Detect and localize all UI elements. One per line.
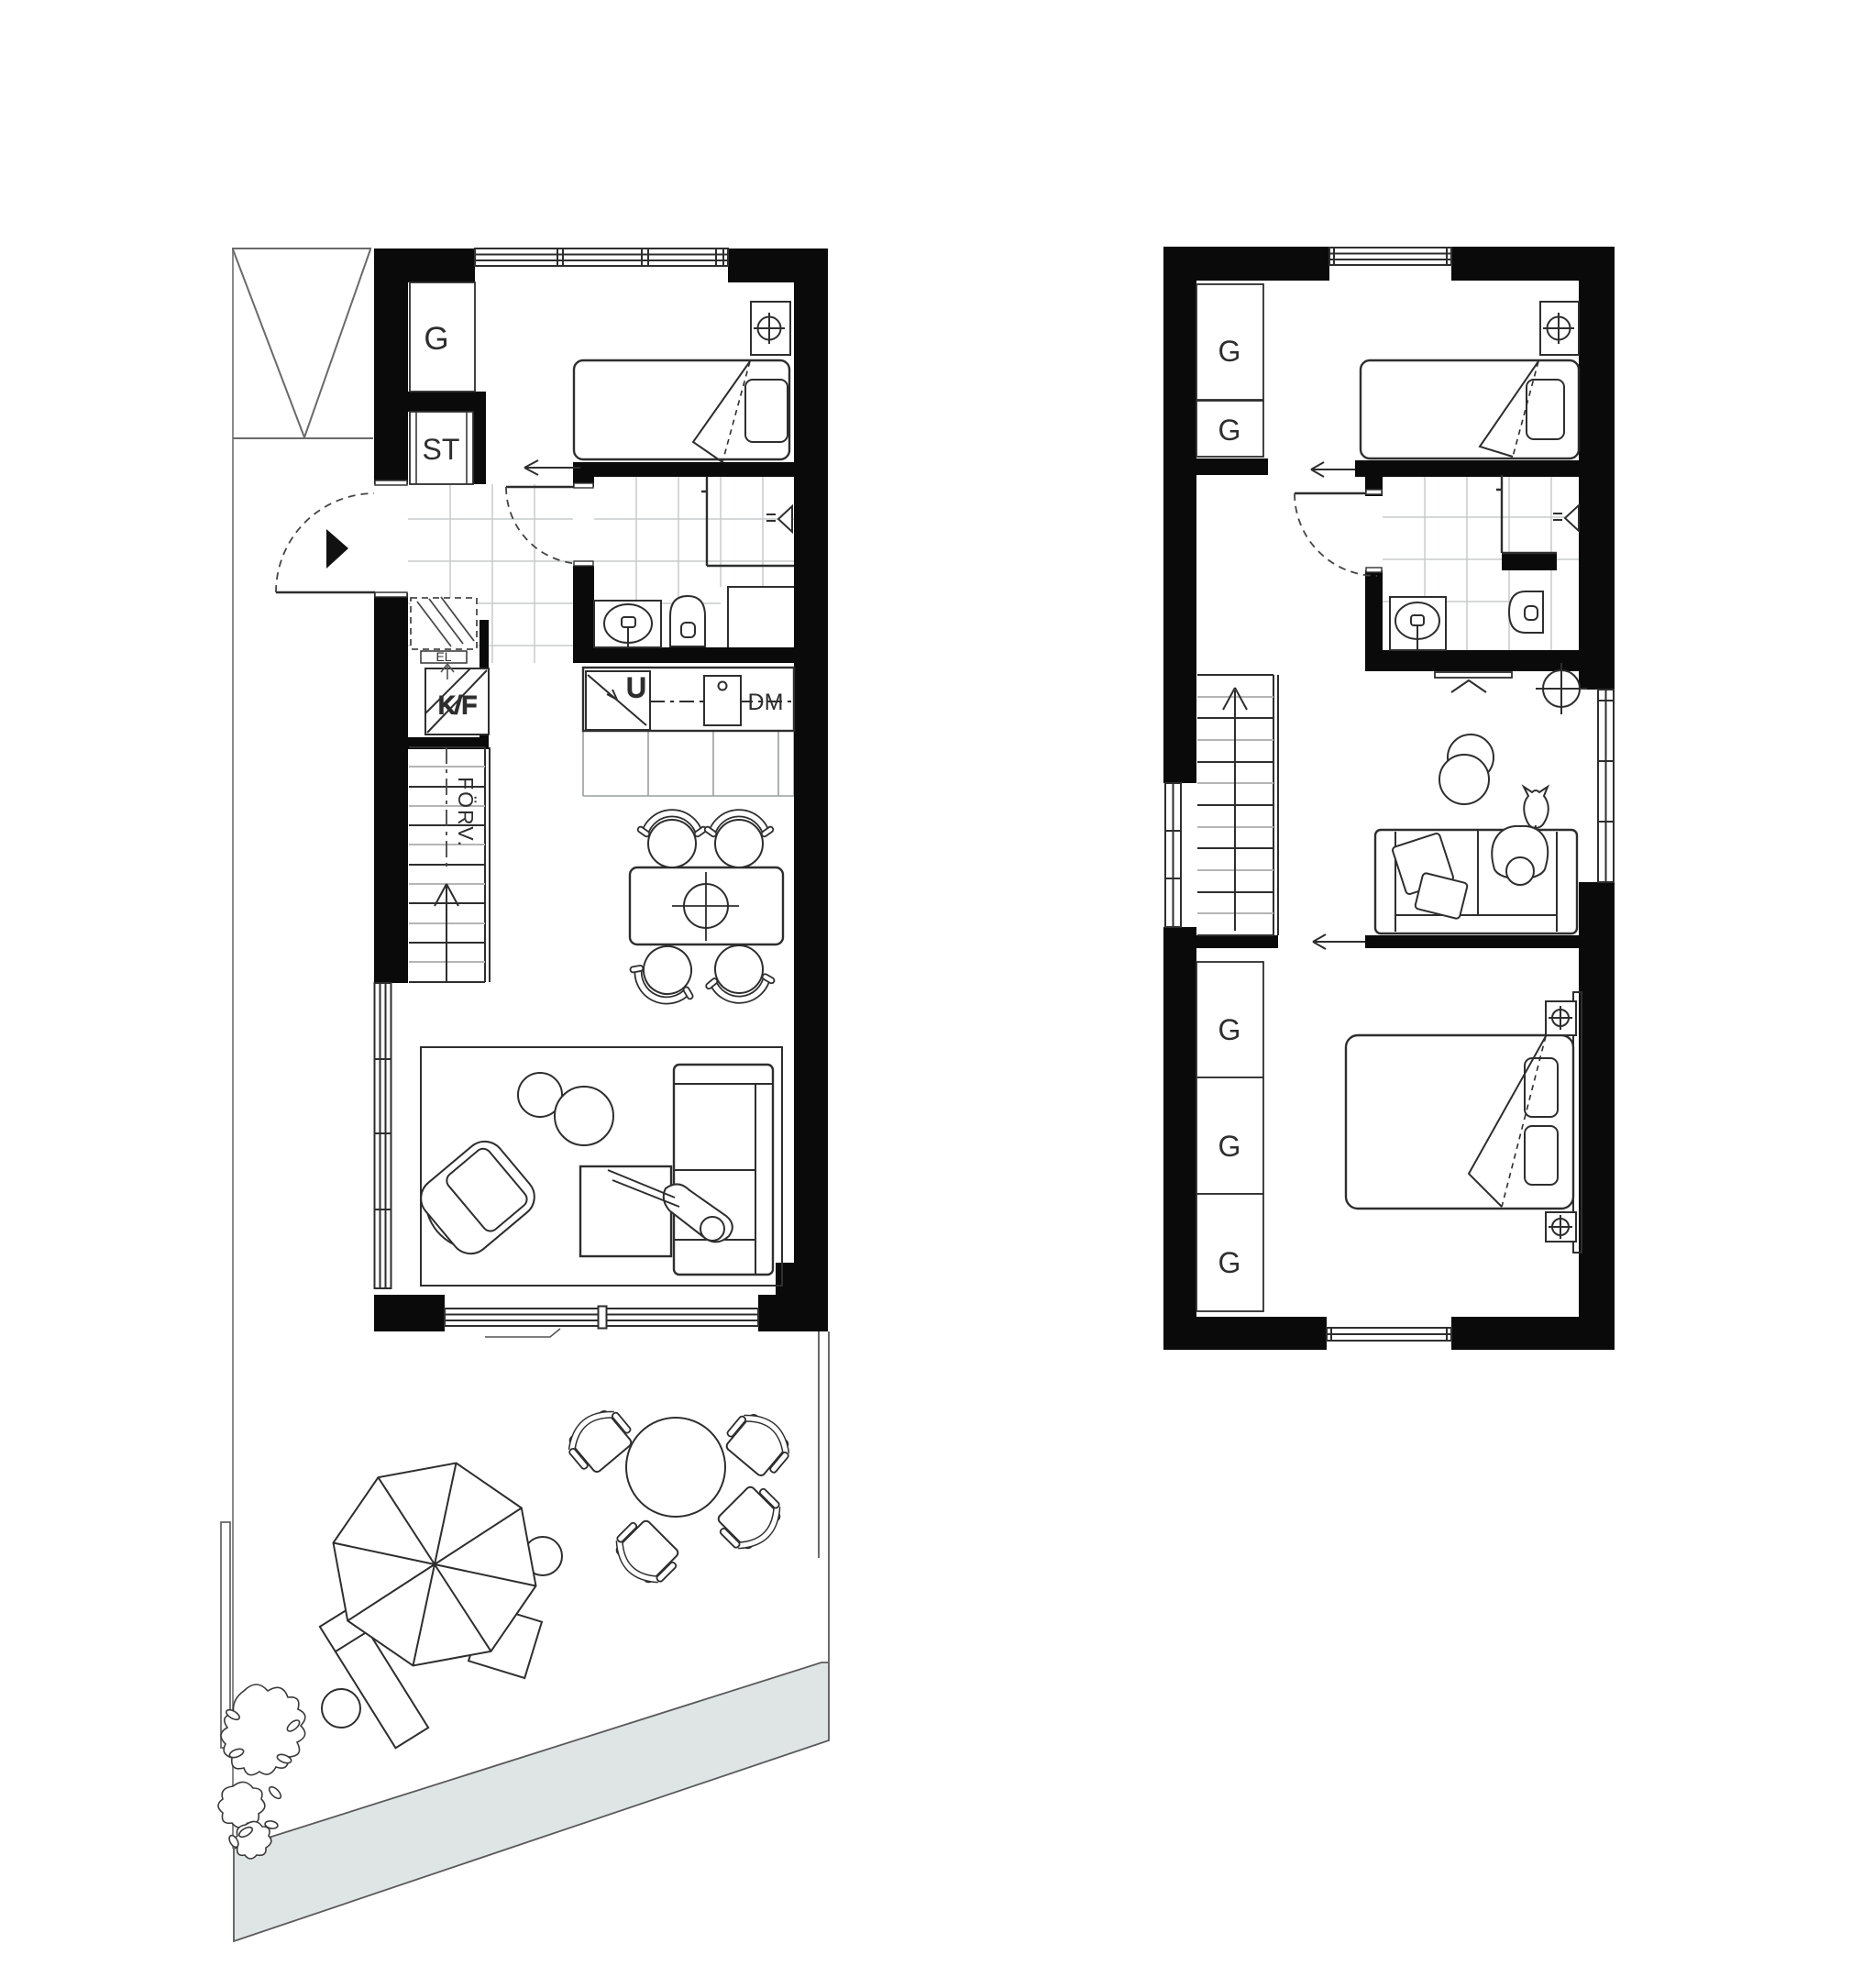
svg-text:K/F: K/F [438, 691, 477, 719]
svg-text:G: G [1218, 335, 1241, 368]
svg-text:G: G [424, 321, 448, 357]
svg-text:U: U [626, 673, 646, 703]
svg-text:FÖRV.: FÖRV. [454, 777, 478, 848]
svg-text:EL: EL [435, 649, 451, 664]
svg-text:G: G [1218, 1246, 1241, 1279]
svg-text:G: G [1218, 414, 1241, 447]
svg-text:G: G [1218, 1130, 1241, 1163]
svg-text:DM: DM [748, 690, 784, 715]
svg-text:ST: ST [423, 433, 460, 466]
svg-text:G: G [1218, 1013, 1241, 1046]
